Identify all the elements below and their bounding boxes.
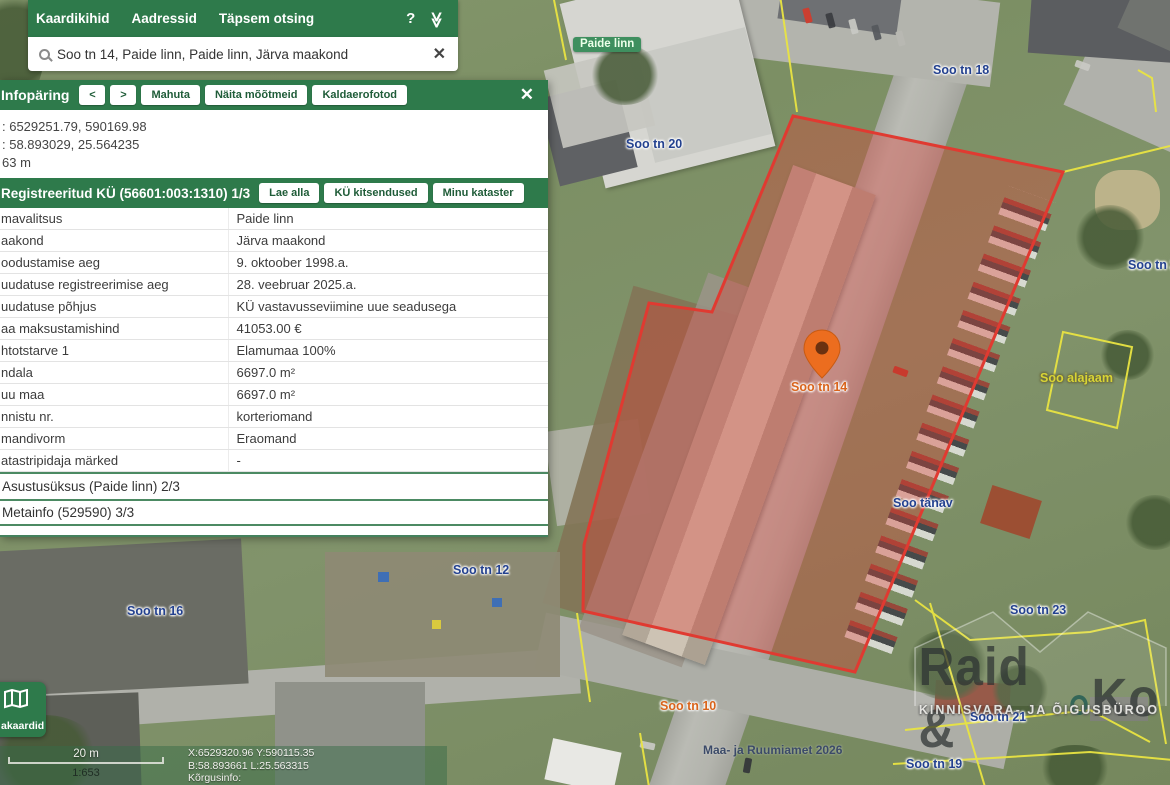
section-asustusuksus[interactable]: Asustusüksus (Paide linn) 2/3: [0, 472, 548, 499]
watermark-subtitle: KINNISVARA- JA ÕIGUSBÜROO: [905, 703, 1170, 717]
registered-ku-header[interactable]: Registreeritud KÜ (56601:003:1310) 1/3 L…: [0, 178, 548, 208]
mahuta-button[interactable]: Mahuta: [141, 85, 200, 105]
row-value: 6697.0 m²: [228, 362, 548, 384]
query-coordinates: : 6529251.79, 590169.98 : 58.893029, 25.…: [0, 110, 548, 178]
table-row: uudatuse põhjusKÜ vastavusseviimine uue …: [0, 296, 548, 318]
map-label-address: Soo tn 25: [1128, 258, 1170, 272]
map-playground-item: [432, 620, 441, 629]
row-label: ndala: [0, 362, 228, 384]
row-label: uudatuse registreerimise aeg: [0, 274, 228, 296]
table-row: aakondJärva maakond: [0, 230, 548, 252]
row-value: Järva maakond: [228, 230, 548, 252]
row-value: 28. veebruar 2025.a.: [228, 274, 548, 296]
register-number-link[interactable]: korteriomand: [228, 406, 548, 428]
search-bar[interactable]: Soo tn 14, Paide linn, Paide linn, Järva…: [28, 37, 458, 71]
map-label-address: Soo tn 20: [626, 137, 682, 151]
maptype-button[interactable]: akaardid: [0, 682, 46, 737]
row-label: aa maksustamishind: [0, 318, 228, 340]
map-playground-item: [492, 598, 502, 607]
panel-title: Infopäring: [1, 87, 69, 103]
table-row: htotstarve 1Elamumaa 100%: [0, 340, 548, 362]
maptype-button-label: akaardid: [1, 720, 44, 732]
table-row: atastripidaja märked-: [0, 450, 548, 472]
collapse-chevrons-icon[interactable]: ≫: [427, 11, 447, 26]
naita-mootmeid-button[interactable]: Näita mõõtmeid: [205, 85, 308, 105]
info-panel: Infopäring < > Mahuta Näita mõõtmeid Kal…: [0, 80, 548, 537]
top-menu-bar: Kaardikihid Aadressid Täpsem otsing ? ≫: [28, 0, 458, 37]
coordinate-xy: : 6529251.79, 590169.98: [2, 118, 546, 136]
row-value: Paide linn: [228, 208, 548, 230]
folded-map-icon: [4, 689, 28, 709]
cursor-bl: B:58.893661 L:25.563315: [188, 760, 314, 773]
map-label-highlighted: Soo tn 14: [791, 380, 847, 394]
row-label: mavalitsus: [0, 208, 228, 230]
prev-button[interactable]: <: [79, 85, 105, 105]
row-label: mandivorm: [0, 428, 228, 450]
minu-kataster-button[interactable]: Minu kataster: [433, 183, 524, 203]
row-label: nnistu nr.: [0, 406, 228, 428]
search-input[interactable]: Soo tn 14, Paide linn, Paide linn, Järva…: [57, 47, 433, 62]
table-row: mavalitsusPaide linn: [0, 208, 548, 230]
registered-ku-title: Registreeritud KÜ (56601:003:1310) 1/3: [1, 186, 250, 201]
row-value: Eraomand: [228, 428, 548, 450]
cursor-xy: X:6529320.96 Y:590115.35: [188, 747, 314, 760]
table-row: uu maa6697.0 m²: [0, 384, 548, 406]
watermark-title-part2: Ko: [1091, 667, 1159, 729]
search-icon: [39, 49, 50, 60]
kaldaerofotod-button[interactable]: Kaldaerofotod: [312, 85, 407, 105]
app-window: Paide linn Soo tn 18 Soo tn 20 Soo tn 25…: [0, 0, 1170, 785]
map-label-address: Soo tn 12: [453, 563, 509, 577]
row-label: aakond: [0, 230, 228, 252]
row-value: KÜ vastavusseviimine uue seadusega: [228, 296, 548, 318]
next-button[interactable]: >: [110, 85, 136, 105]
table-row: nnistu nr.korteriomand: [0, 406, 548, 428]
map-building: [0, 539, 249, 697]
section-metainfo[interactable]: Metainfo (529590) 3/3: [0, 499, 548, 526]
table-row: mandivormEraomand: [0, 428, 548, 450]
map-label-cadastral: Soo alajaam: [1040, 371, 1113, 385]
tree: [590, 45, 660, 105]
cursor-elevation: Kõrgusinfo:: [188, 772, 314, 785]
ku-kitsendused-button[interactable]: KÜ kitsendused: [324, 183, 427, 203]
map-label-place: Paide linn: [573, 37, 641, 52]
row-label: htotstarve 1: [0, 340, 228, 362]
coordinate-bl: : 58.893029, 25.564235: [2, 136, 546, 154]
map-playground: [325, 552, 560, 677]
table-row: ndala6697.0 m²: [0, 362, 548, 384]
table-row: aa maksustamishind41053.00 €: [0, 318, 548, 340]
map-copyright: Maa- ja Ruumiamet 2026: [703, 743, 842, 757]
row-label: uu maa: [0, 384, 228, 406]
clear-search-icon[interactable]: ✕: [433, 44, 446, 64]
tax-price-link[interactable]: 41053.00 €: [228, 318, 548, 340]
close-panel-icon[interactable]: ✕: [520, 85, 534, 105]
map-label-address: Soo tn 23: [1010, 603, 1066, 617]
row-label: uudatuse põhjus: [0, 296, 228, 318]
row-value: 6697.0 m²: [228, 384, 548, 406]
parcel-attributes-table: mavalitsusPaide linn aakondJärva maakond…: [0, 208, 548, 472]
help-icon[interactable]: ?: [406, 10, 415, 27]
map-label-address: Soo tn 18: [933, 63, 989, 77]
table-row: oodustamise aeg9. oktoober 1998.a.: [0, 252, 548, 274]
status-bar: 20 m 1:653 X:6529320.96 Y:590115.35 B:58…: [0, 746, 447, 785]
row-value: -: [228, 450, 548, 472]
map-label-highlighted: Soo tn 10: [660, 699, 716, 713]
watermark-title-part1: Raid &: [918, 636, 1066, 760]
row-value: 9. oktoober 1998.a.: [228, 252, 548, 274]
panel-footer: [0, 526, 548, 535]
row-label: oodustamise aeg: [0, 252, 228, 274]
watermark-title: Raid & Ko: [918, 636, 1159, 760]
info-panel-header: Infopäring < > Mahuta Näita mõõtmeid Kal…: [0, 80, 548, 110]
table-row: uudatuse registreerimise aeg28. veebruar…: [0, 274, 548, 296]
map-playground-item: [378, 572, 389, 582]
map-label-street: Soo tänav: [893, 496, 953, 510]
scale-ratio: 1:653: [8, 767, 164, 779]
menu-item-kaardikihid[interactable]: Kaardikihid: [36, 11, 110, 26]
coordinate-elevation: 63 m: [2, 154, 546, 172]
row-label: atastripidaja märked: [0, 450, 228, 472]
menu-item-aadressid[interactable]: Aadressid: [132, 11, 197, 26]
lae-alla-button[interactable]: Lae alla: [259, 183, 319, 203]
row-value: Elamumaa 100%: [228, 340, 548, 362]
scale-bar: [8, 757, 164, 764]
map-label-address: Soo tn 16: [127, 604, 183, 618]
cursor-coordinates: X:6529320.96 Y:590115.35 B:58.893661 L:2…: [188, 747, 314, 785]
menu-item-tapsem-otsing[interactable]: Täpsem otsing: [219, 11, 314, 26]
